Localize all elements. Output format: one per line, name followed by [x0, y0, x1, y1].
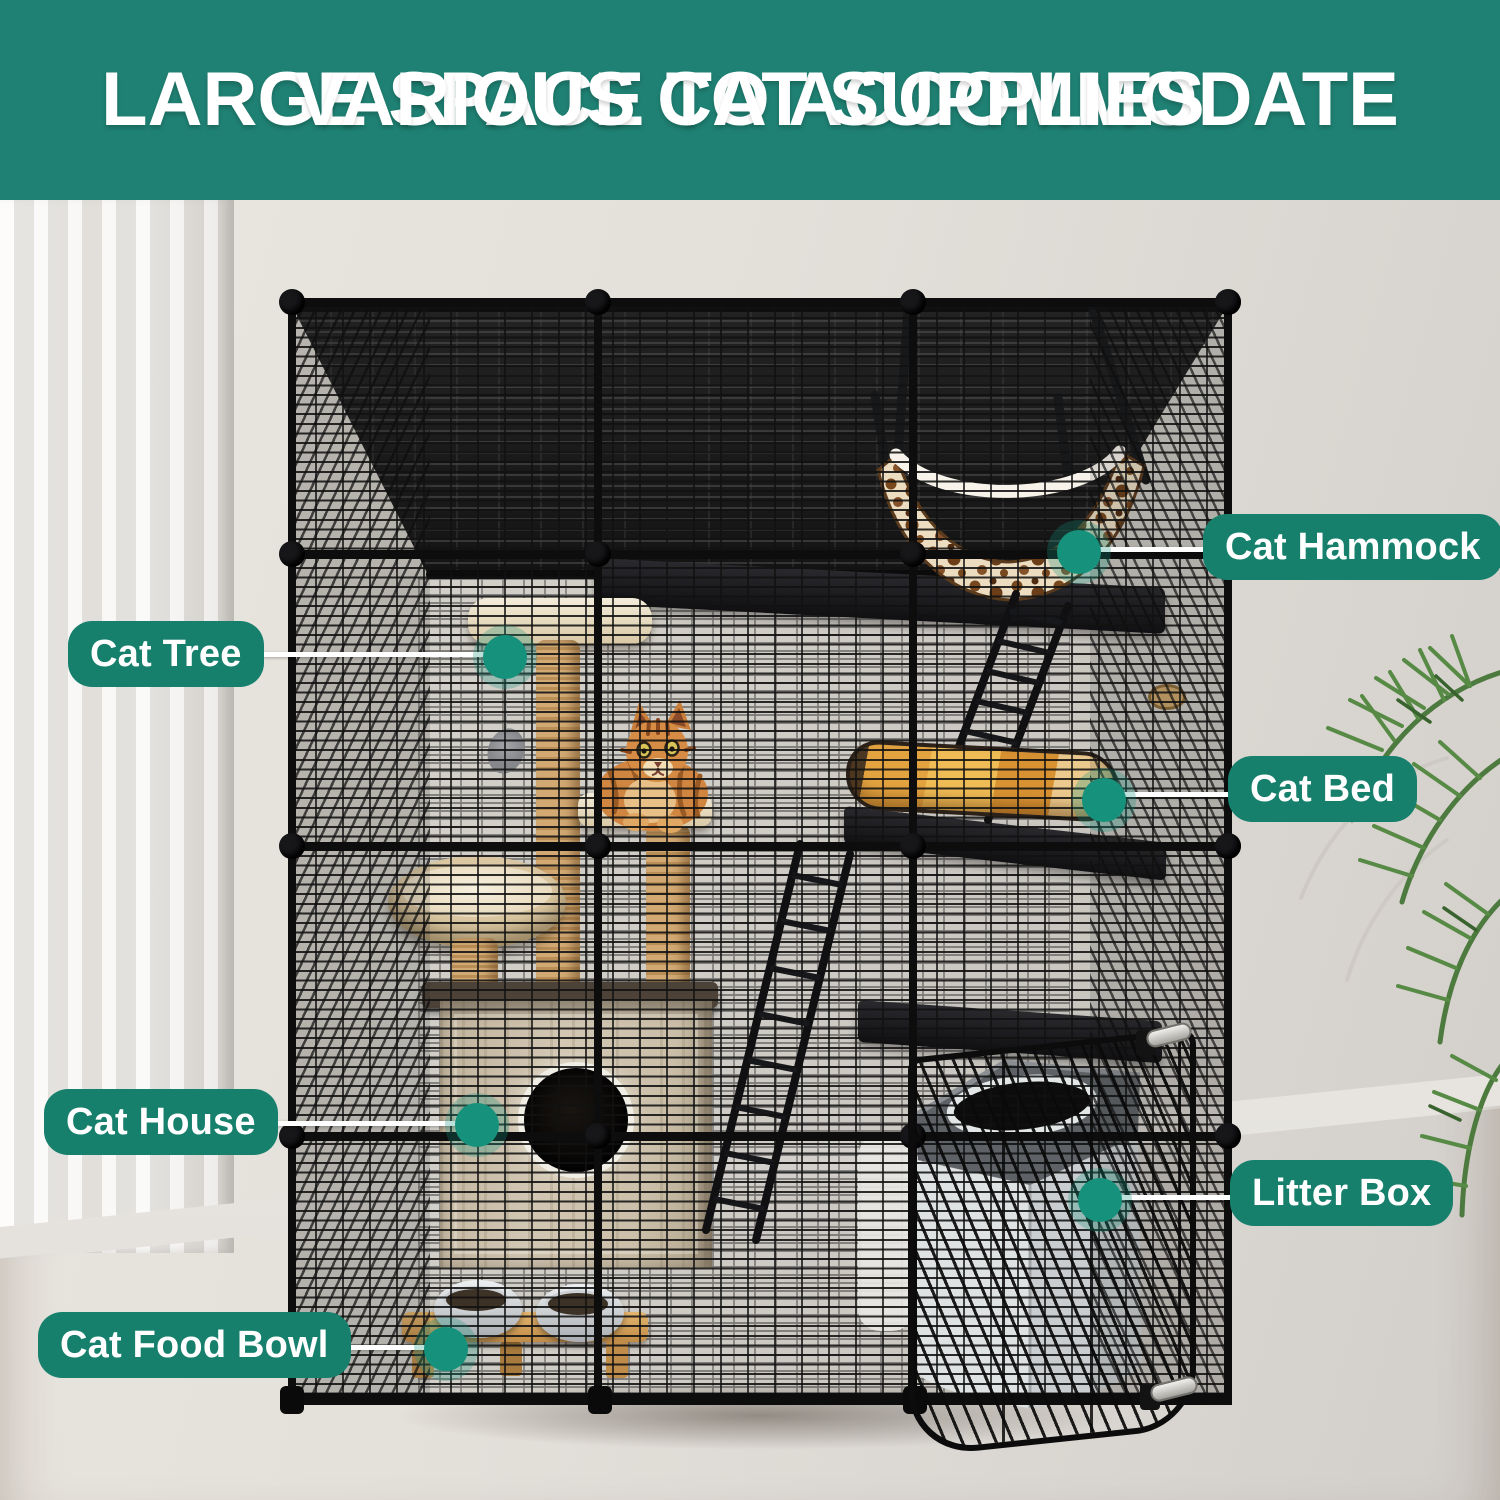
callout-label-cat-hammock: Cat Hammock — [1203, 514, 1500, 580]
callout-line-cat-tree — [262, 652, 490, 657]
callout-dot-cat-food-bowl — [424, 1327, 468, 1371]
callout-label-cat-tree: Cat Tree — [68, 621, 264, 687]
callout-label-litter-box: Litter Box — [1230, 1160, 1453, 1226]
connector-ball — [279, 541, 305, 567]
connector-ball — [279, 1123, 305, 1149]
callout-label-cat-food-bowl: Cat Food Bowl — [38, 1312, 351, 1378]
callout-dot-cat-bed — [1082, 778, 1126, 822]
callout-line-cat-bed — [1110, 792, 1235, 797]
callout-text: Cat Food Bowl — [60, 1324, 329, 1367]
callout-text: Cat Tree — [90, 633, 242, 676]
callout-label-cat-bed: Cat Bed — [1228, 756, 1417, 822]
connector-ball — [900, 833, 926, 859]
callout-dot-cat-hammock — [1057, 530, 1101, 574]
connector-ball — [279, 833, 305, 859]
callout-line-cat-house — [258, 1121, 462, 1126]
callout-dot-cat-house — [455, 1103, 499, 1147]
callout-line-litter-box — [1106, 1195, 1238, 1200]
connector-ball — [279, 289, 305, 315]
callout-dot-cat-tree — [483, 635, 527, 679]
callout-text: Cat Hammock — [1225, 526, 1481, 569]
connector-ball — [1215, 833, 1241, 859]
cage-foot — [280, 1386, 304, 1414]
callout-dot-litter-box — [1078, 1178, 1122, 1222]
callout-text: Litter Box — [1252, 1172, 1431, 1215]
callout-line-cat-hammock — [1086, 547, 1210, 552]
cage-frame — [288, 298, 1232, 307]
connector-ball — [1215, 289, 1241, 315]
callout-text: Cat Bed — [1250, 768, 1395, 811]
connector-ball — [1215, 1123, 1241, 1149]
connector-ball — [585, 833, 611, 859]
connector-ball — [900, 289, 926, 315]
product-infographic: Cat Hammock Cat Tree Cat Bed Cat House L… — [0, 0, 1500, 1500]
connector-ball — [585, 541, 611, 567]
cage-foot — [588, 1386, 612, 1414]
callout-text: Cat House — [66, 1101, 256, 1144]
connector-ball — [585, 289, 611, 315]
callout-label-cat-house: Cat House — [44, 1089, 278, 1155]
headline-banner: LARGE SPACE TO ACCOMMODATE VARIOUS CAT S… — [0, 0, 1500, 200]
connector-ball — [585, 1123, 611, 1149]
cage-frame — [288, 842, 1232, 851]
headline-line2: VARIOUS CAT SUPPLIES — [295, 55, 1204, 145]
connector-ball — [900, 541, 926, 567]
